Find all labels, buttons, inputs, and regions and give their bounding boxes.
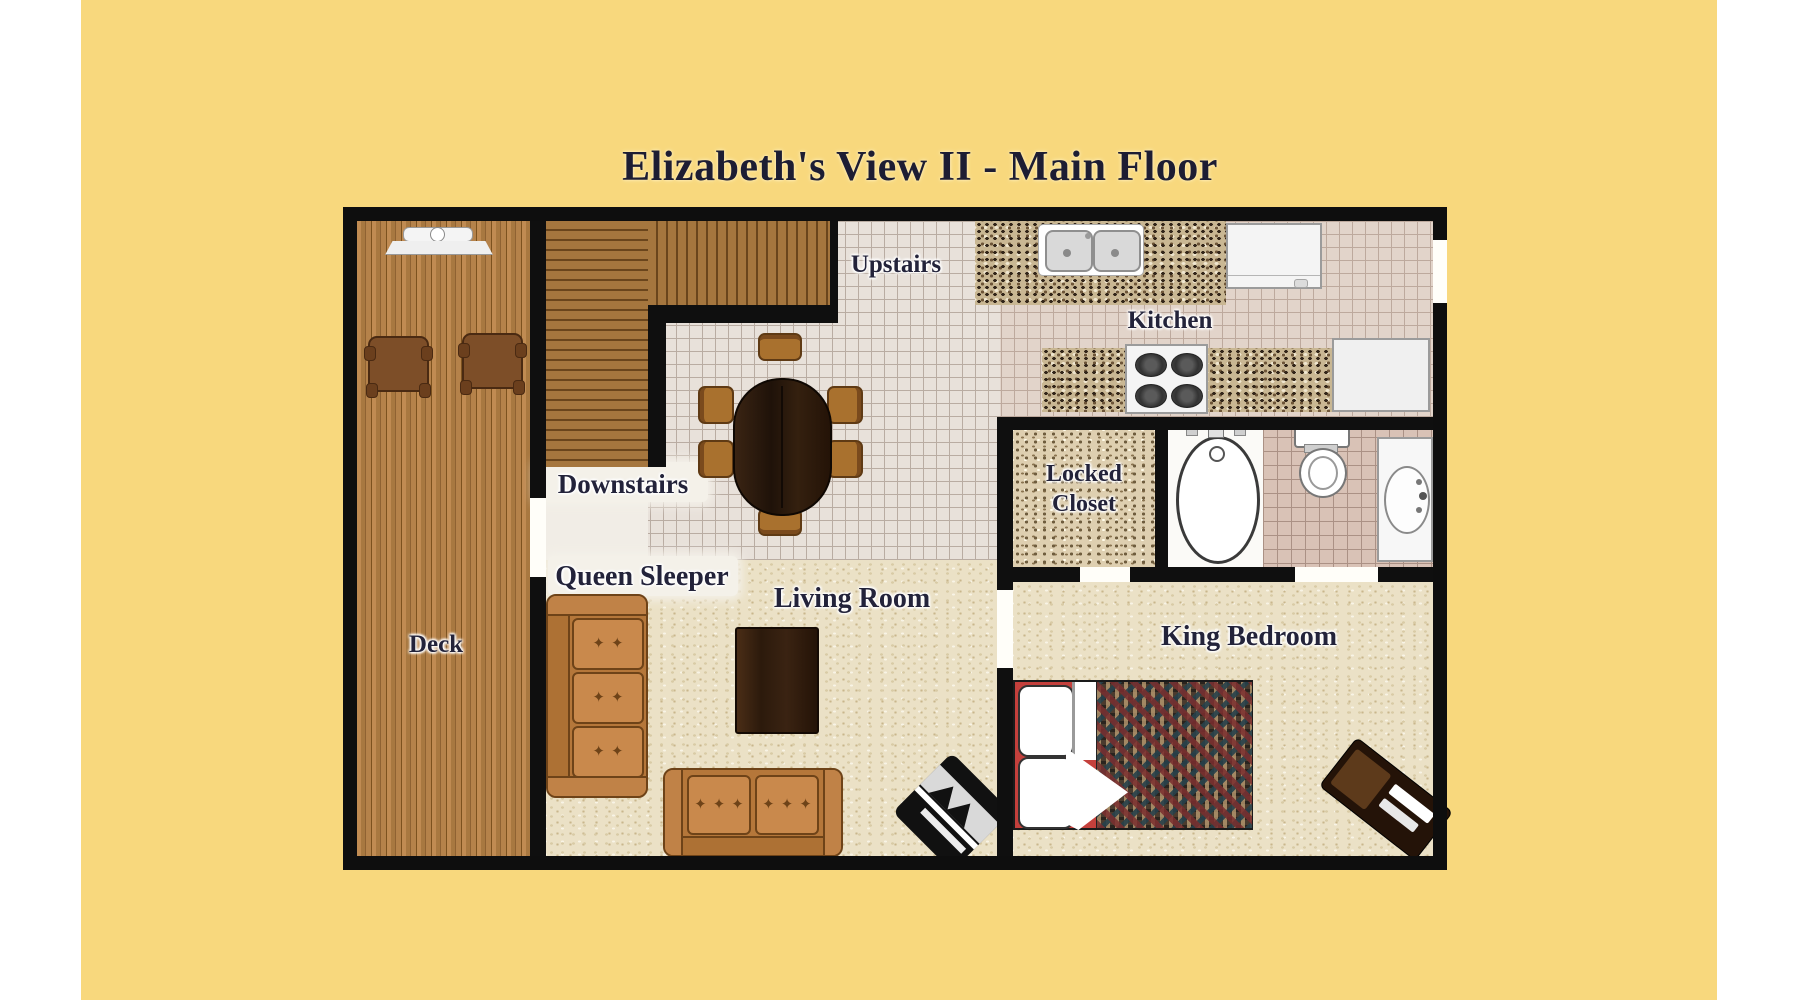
room-label-kitchen: Kitchen	[1070, 306, 1270, 336]
page-title: Elizabeth's View II - Main Floor	[520, 143, 1320, 191]
room-label-locked-closet: Locked Closet	[1013, 459, 1155, 519]
floor-plan-page: Elizabeth's View II - Main Floor	[0, 0, 1800, 1000]
room-label-deck: Deck	[356, 630, 516, 660]
room-label-king-bedroom: King Bedroom	[1124, 622, 1374, 652]
room-label-living-room: Living Room	[727, 584, 977, 614]
bathroom-door-opening	[1295, 567, 1378, 582]
room-label-downstairs: Downstairs	[523, 469, 723, 499]
exterior-walls	[343, 207, 1447, 870]
kitchen-exterior-door-opening	[1433, 240, 1447, 303]
bedroom-door-opening	[997, 590, 1013, 668]
closet-door-opening	[1080, 567, 1130, 582]
room-label-upstairs: Upstairs	[796, 250, 996, 280]
